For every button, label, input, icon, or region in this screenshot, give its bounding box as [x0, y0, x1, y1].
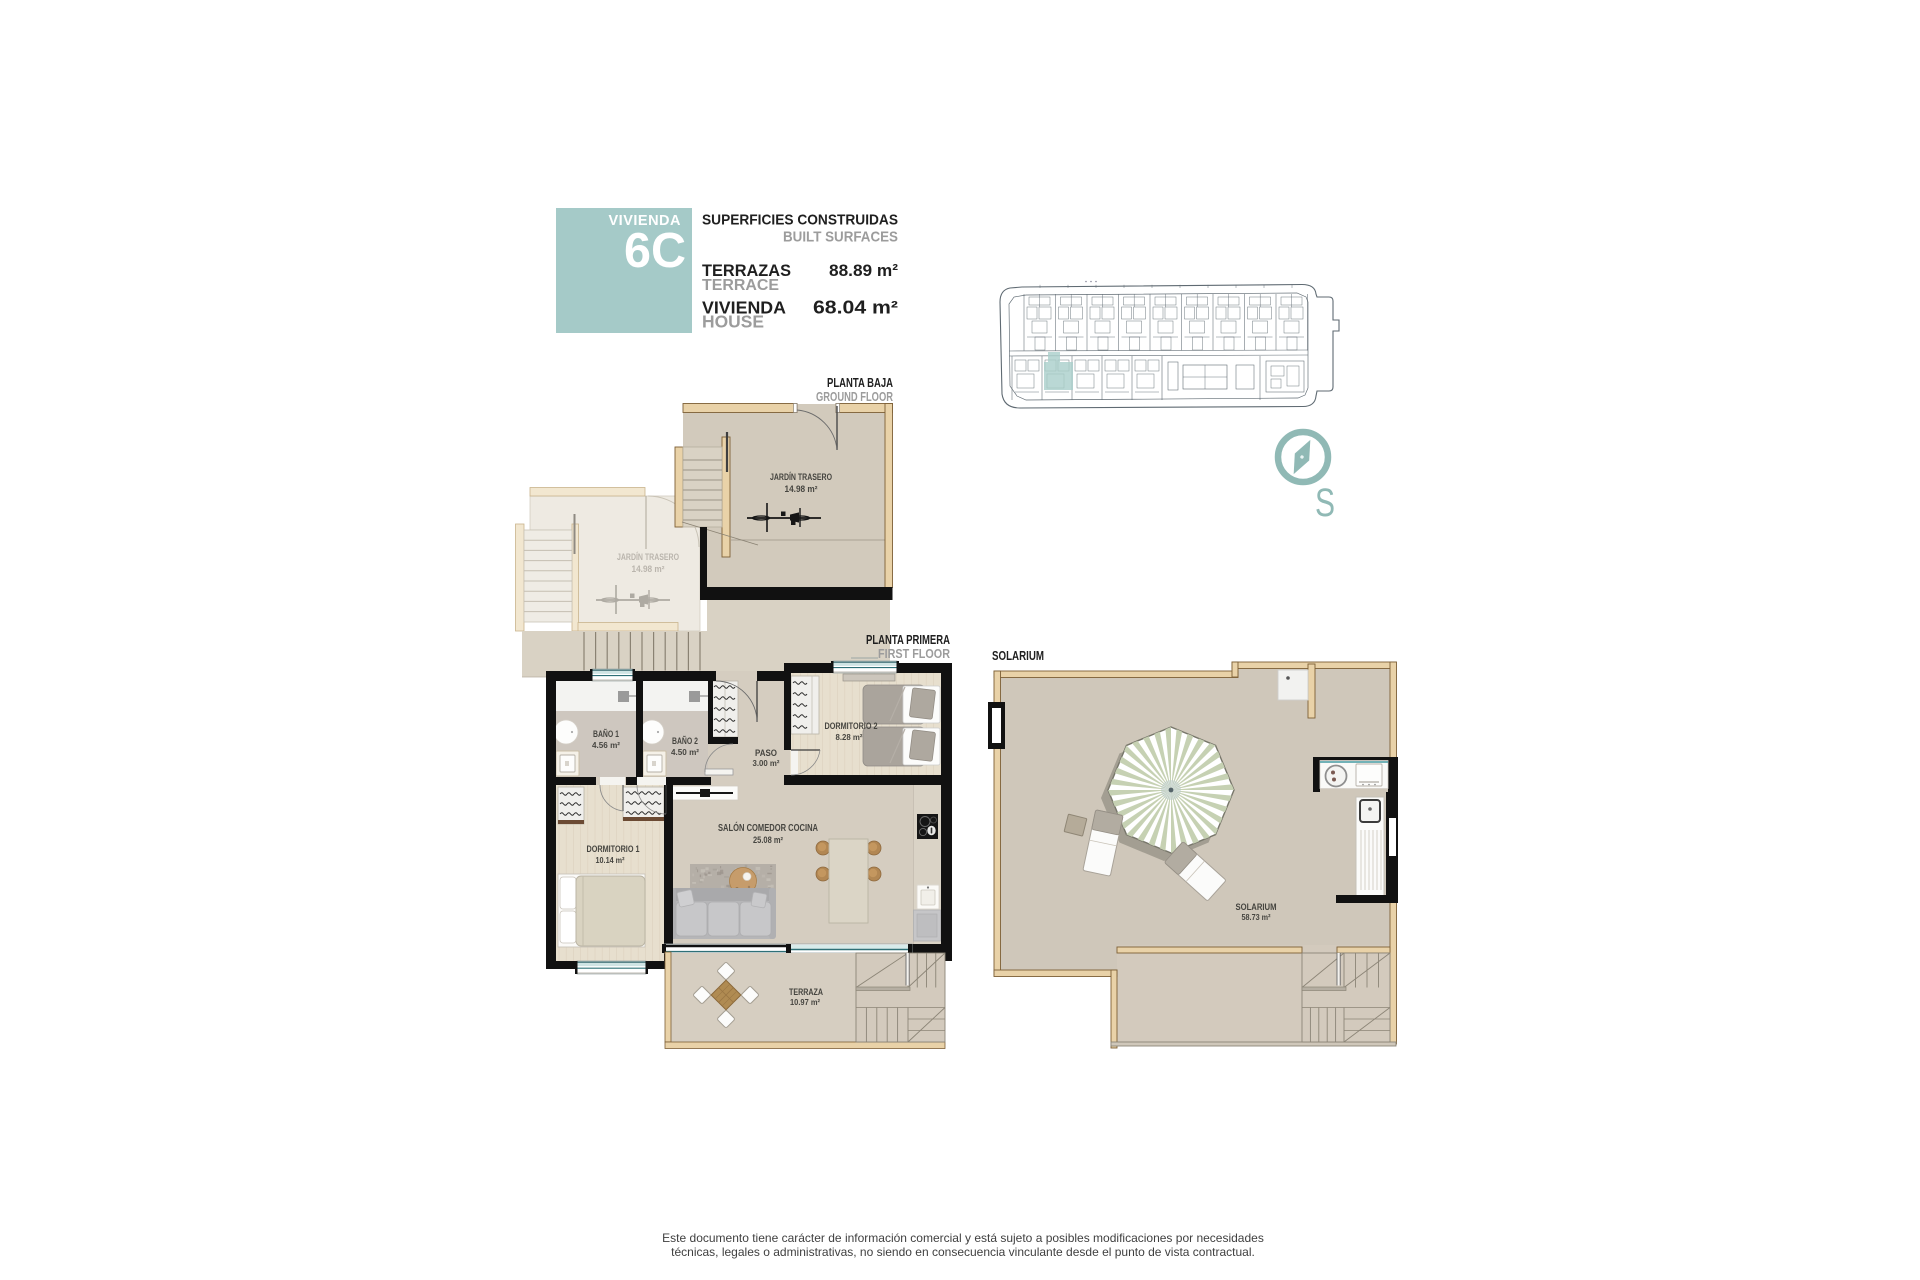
- svg-text:BAÑO 1: BAÑO 1: [593, 729, 620, 740]
- svg-text:SOLARIUM: SOLARIUM: [992, 649, 1044, 663]
- svg-text:25.08 m²: 25.08 m²: [753, 835, 783, 845]
- svg-text:10.97 m²: 10.97 m²: [790, 997, 820, 1007]
- svg-text:4.56 m²: 4.56 m²: [592, 740, 620, 750]
- svg-text:10.14 m²: 10.14 m²: [596, 855, 625, 865]
- svg-text:DORMITORIO 1: DORMITORIO 1: [587, 844, 641, 855]
- svg-text:HOUSE: HOUSE: [702, 312, 764, 332]
- svg-text:BUILT SURFACES: BUILT SURFACES: [783, 229, 898, 246]
- svg-text:68.04 m²: 68.04 m²: [813, 298, 898, 318]
- svg-text:JARDÍN TRASERO: JARDÍN TRASERO: [770, 472, 832, 483]
- svg-text:SUPERFICIES CONSTRUIDAS: SUPERFICIES CONSTRUIDAS: [702, 212, 898, 229]
- svg-text:FIRST FLOOR: FIRST FLOOR: [878, 647, 950, 661]
- svg-text:14.98 m²: 14.98 m²: [785, 484, 818, 494]
- svg-text:BAÑO 2: BAÑO 2: [672, 736, 698, 747]
- svg-text:técnicas, legales o administra: técnicas, legales o administrativas, no …: [671, 1245, 1255, 1259]
- svg-text:88.89 m²: 88.89 m²: [829, 262, 899, 280]
- svg-text:GROUND FLOOR: GROUND FLOOR: [816, 390, 893, 404]
- svg-text:TERRACE: TERRACE: [702, 277, 779, 294]
- svg-text:PLANTA PRIMERA: PLANTA PRIMERA: [866, 633, 950, 647]
- svg-text:8.28 m²: 8.28 m²: [836, 732, 863, 742]
- svg-text:4.50 m²: 4.50 m²: [671, 747, 699, 757]
- svg-text:58.73 m²: 58.73 m²: [1242, 912, 1271, 922]
- svg-text:14.98 m²: 14.98 m²: [632, 564, 665, 574]
- svg-text:6C: 6C: [624, 223, 686, 278]
- svg-text:DORMITORIO 2: DORMITORIO 2: [825, 721, 878, 732]
- svg-text:S: S: [1315, 481, 1335, 525]
- svg-text:PLANTA BAJA: PLANTA BAJA: [827, 376, 893, 390]
- svg-text:Este documento tiene carácter: Este documento tiene carácter de informa…: [662, 1231, 1264, 1245]
- svg-text:3.00 m²: 3.00 m²: [753, 758, 780, 768]
- svg-text:SALÓN COMEDOR COCINA: SALÓN COMEDOR COCINA: [718, 821, 818, 834]
- svg-text:JARDÍN TRASERO: JARDÍN TRASERO: [617, 552, 679, 563]
